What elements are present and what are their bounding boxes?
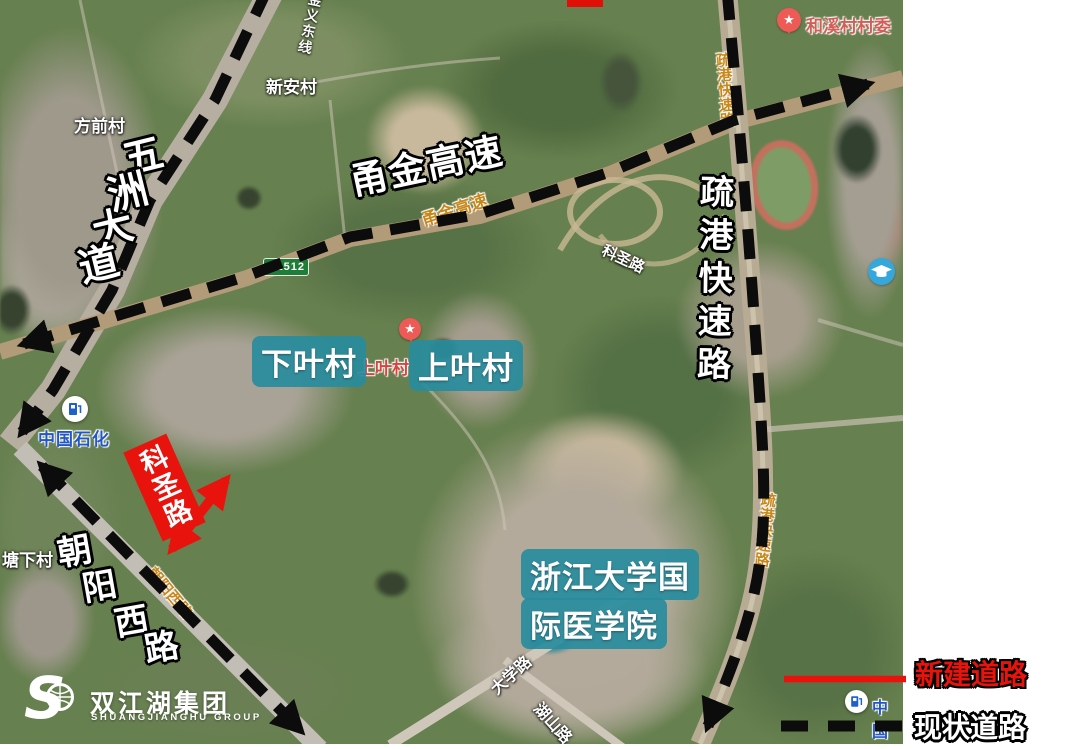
gas-station-icon	[62, 396, 88, 422]
label-hexi-village-committee: 和溪村村委	[806, 12, 891, 37]
annotation-shugang-expressway: 疏港快速路	[686, 174, 739, 390]
annotation-xiaye-village: 下叶村	[252, 336, 366, 387]
cropped-poi-box	[567, 0, 603, 7]
school-poi-icon	[868, 258, 895, 285]
company-logo-name-en: SHUANGJIANGHU GROUP	[91, 712, 262, 723]
label-tangxia-village: 塘下村	[2, 546, 53, 571]
company-logo-mark: S	[22, 666, 92, 730]
label-xinan-village: 新安村	[266, 73, 317, 98]
legend-existing-road-label: 现状道路	[914, 706, 1026, 746]
gas-station-icon	[845, 690, 868, 713]
annotated-map-image: 方前村 新安村 金义东线 和溪村村委 塘下村 上叶村 科圣路 大学路 湖山路 中…	[0, 0, 1080, 749]
label-sinopec: 中国石化	[38, 425, 110, 450]
annotation-shangye-village: 上叶村	[409, 340, 523, 391]
hexi-star-pin-icon: ★	[777, 8, 801, 32]
shangye-star-pin-icon: ★	[399, 318, 421, 340]
label-sinopec-partial: 中国	[872, 694, 903, 742]
annotation-zju-medical-line1: 浙江大学国	[521, 549, 699, 600]
annotation-zju-medical-line2: 际医学院	[521, 598, 667, 649]
g1512-highway-shield: G1512	[263, 258, 309, 276]
legend-new-road-label: 新建道路	[915, 653, 1027, 693]
